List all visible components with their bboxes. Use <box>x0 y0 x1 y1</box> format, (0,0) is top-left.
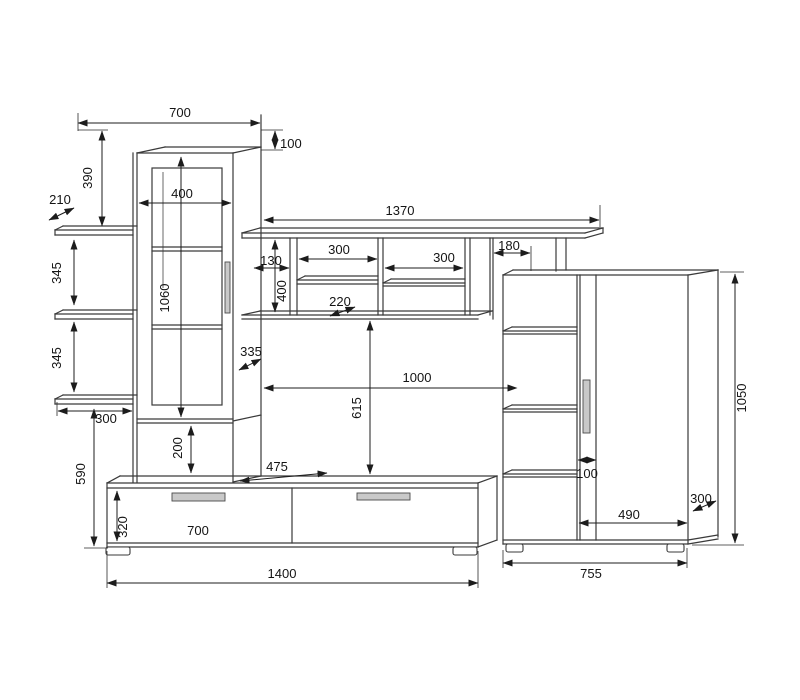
glass-door-handle <box>225 262 230 313</box>
dim-label-glass-width: 400 <box>171 186 193 201</box>
dim-label-tv-width: 1000 <box>403 370 432 385</box>
dim-label-drop: 390 <box>80 167 95 189</box>
cabinet-foot-right <box>667 544 684 552</box>
bridge-shelf-unit <box>242 228 603 319</box>
dim-label-top-offset: 100 <box>280 136 302 151</box>
stand-foot-left <box>106 547 130 555</box>
dim-label-stand-height: 320 <box>115 516 130 538</box>
right-drawer-handle <box>357 493 410 500</box>
dim-label-door-width: 490 <box>618 507 640 522</box>
dim-label-shelf-depth: 210 <box>49 192 71 207</box>
dim-label-niche-right: 300 <box>433 250 455 265</box>
tv-stand <box>106 476 497 555</box>
dim-label-drawer-width: 700 <box>187 523 209 538</box>
cabinet-foot-left <box>506 544 523 552</box>
dim-label-bridge-width: 1370 <box>386 203 415 218</box>
stand-foot-right <box>453 547 477 555</box>
dim-label-left-height: 590 <box>73 463 88 485</box>
dim-label-niche-depth: 220 <box>329 294 351 309</box>
drawing-page: 700 100 390 210 400 1370 345 345 1060 13… <box>0 0 800 700</box>
dim-label-gap-upper: 345 <box>49 262 64 284</box>
furniture-drawing: 700 100 390 210 400 1370 345 345 1060 13… <box>0 0 800 700</box>
dim-label-slot: 130 <box>260 253 282 268</box>
dim-label-glass-height: 1060 <box>157 284 172 313</box>
dim-label-left-width: 300 <box>95 411 117 426</box>
dim-label-top-width: 700 <box>169 105 191 120</box>
dimension-labels: 700 100 390 210 400 1370 345 345 1060 13… <box>49 105 749 581</box>
dim-label-bridge-height: 400 <box>274 280 289 302</box>
dim-label-rc-width: 755 <box>580 566 602 581</box>
dim-label-cab-depth: 335 <box>240 344 262 359</box>
dim-label-gap-lower: 345 <box>49 347 64 369</box>
dim-label-stand-width: 1400 <box>268 566 297 581</box>
dim-label-right-offset: 180 <box>498 238 520 253</box>
tall-glass-cabinet <box>133 115 261 482</box>
right-cabinet <box>503 270 718 552</box>
cabinet-door-handle <box>583 380 590 433</box>
dim-label-rc-depth: 300 <box>690 491 712 506</box>
dim-label-rc-height: 1050 <box>734 384 749 413</box>
dim-label-stand-depth: 475 <box>266 459 288 474</box>
dim-label-tv-height: 615 <box>349 397 364 419</box>
dim-label-door-gap: 100 <box>576 466 598 481</box>
dim-label-base-niche: 200 <box>170 437 185 459</box>
left-wall-shelves <box>55 226 137 404</box>
left-drawer-handle <box>172 493 225 501</box>
dim-label-niche-left: 300 <box>328 242 350 257</box>
